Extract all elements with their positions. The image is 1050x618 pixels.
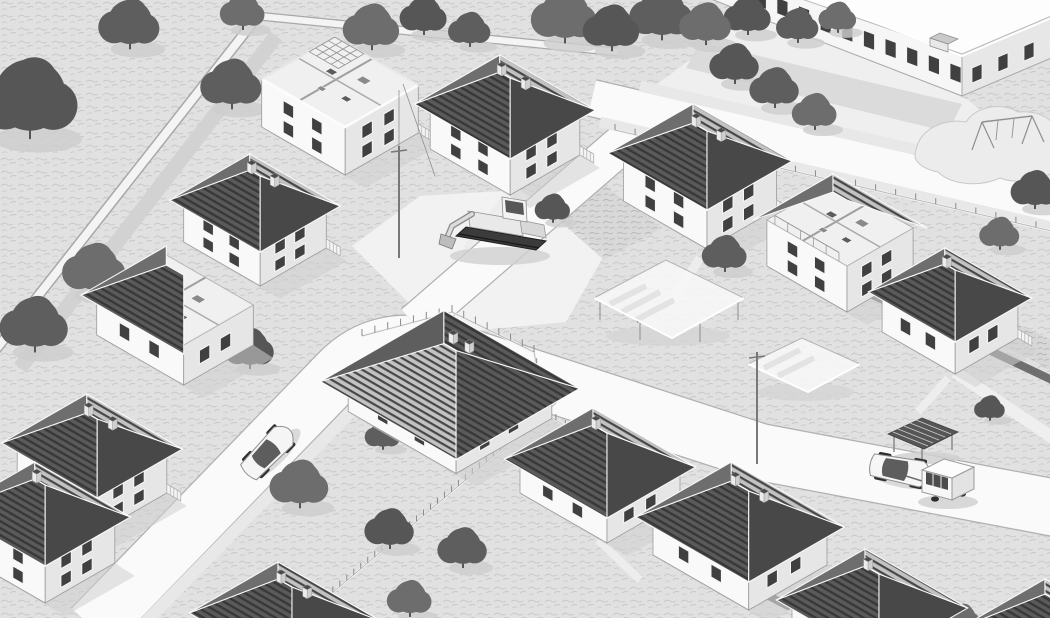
scene-svg: [0, 0, 1050, 618]
isometric-neighborhood-render: [0, 0, 1050, 618]
